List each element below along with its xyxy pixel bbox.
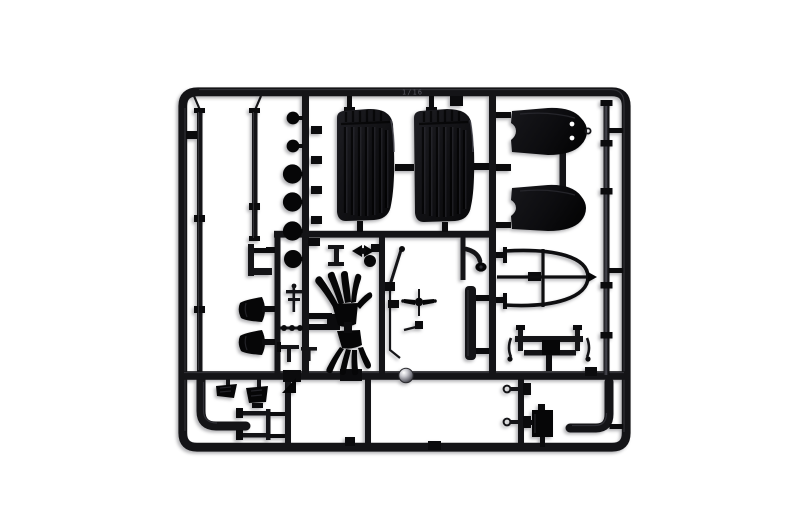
- frame-scale-marking: 1/16: [402, 89, 423, 97]
- beaded-driveshaft: [278, 325, 304, 331]
- injection-gate-ball: [399, 368, 413, 382]
- sprue-photo: 1/16: [0, 0, 800, 530]
